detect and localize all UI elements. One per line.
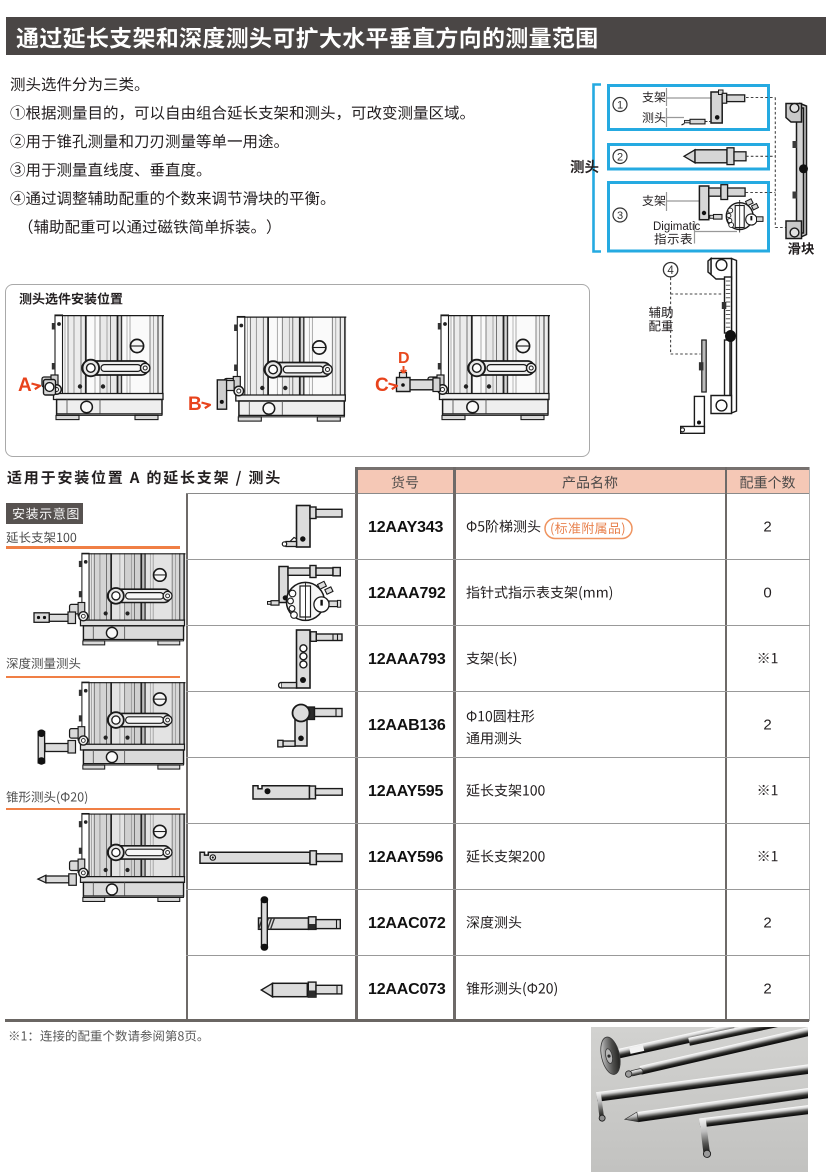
svg-text:A: A [18, 375, 32, 396]
svg-text:12AAC073: 12AAC073 [368, 981, 446, 998]
svg-text:2: 2 [763, 980, 771, 997]
svg-text:0: 0 [763, 584, 771, 601]
svg-text:2: 2 [763, 518, 771, 535]
svg-text:12AAA793: 12AAA793 [368, 651, 446, 668]
svg-text:12AAY343: 12AAY343 [368, 519, 444, 536]
svg-text:4: 4 [667, 265, 674, 277]
svg-text:C: C [375, 375, 389, 396]
svg-text:2: 2 [763, 716, 771, 733]
svg-text:B: B [188, 394, 202, 415]
svg-text:D: D [398, 350, 410, 367]
svg-text:2: 2 [617, 151, 623, 163]
svg-text:2: 2 [763, 914, 771, 931]
svg-text:3: 3 [617, 210, 623, 222]
svg-text:12AAB136: 12AAB136 [368, 717, 446, 734]
svg-text:12AAY595: 12AAY595 [368, 783, 444, 800]
svg-text:Digimatic: Digimatic [653, 221, 701, 233]
svg-text:1: 1 [617, 99, 623, 111]
svg-text:12AAA792: 12AAA792 [368, 585, 446, 602]
svg-text:12AAC072: 12AAC072 [368, 915, 446, 932]
svg-text:12AAY596: 12AAY596 [368, 849, 444, 866]
